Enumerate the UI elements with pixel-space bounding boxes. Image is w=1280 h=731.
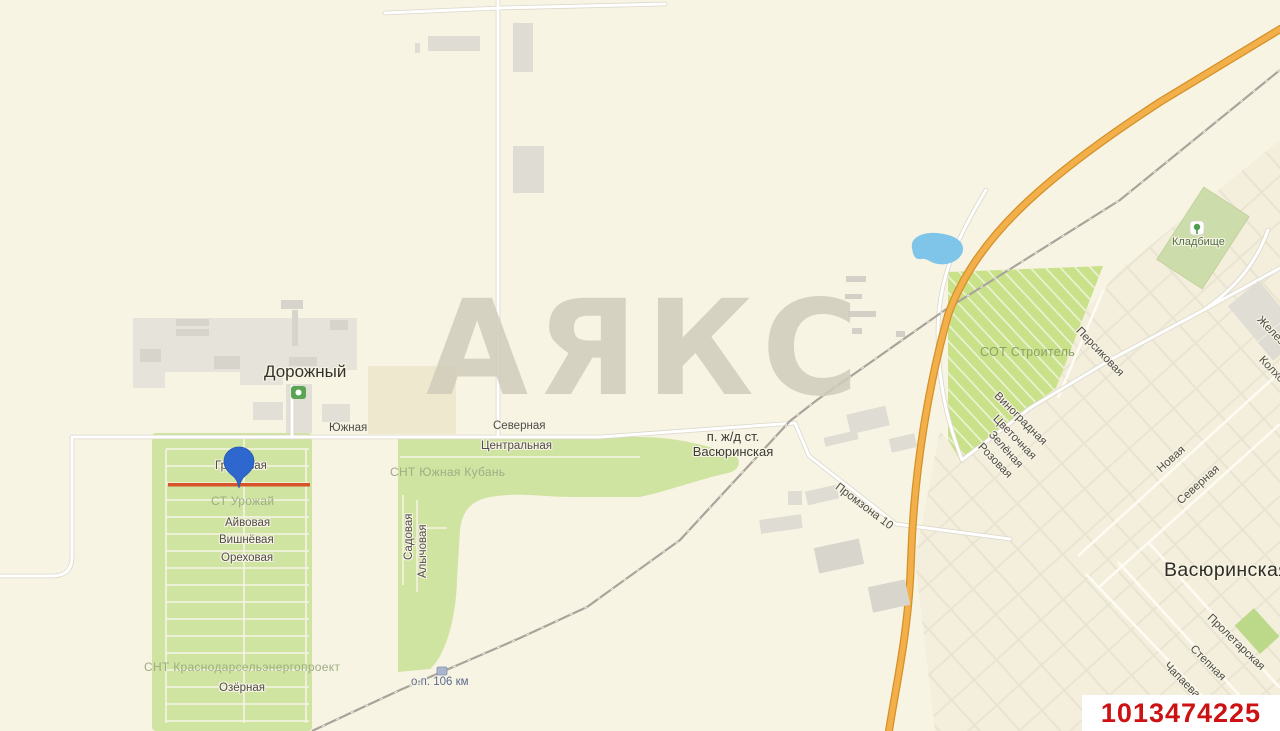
listing-id-value: 1013474225: [1101, 698, 1261, 729]
label-street-ayvovaya: Айвовая: [225, 517, 270, 529]
listing-id-badge: 1013474225: [1082, 695, 1280, 731]
label-rail-stop: о.п. 106 км: [411, 676, 469, 688]
label-station-line2: Васюринская: [683, 445, 783, 460]
label-sot-stroitel: СОТ Строитель: [980, 345, 1075, 359]
label-snt-kse: СНТ Краснодарсельэнергопроект: [144, 660, 340, 674]
label-st-urozhay: СТ Урожай: [211, 494, 274, 508]
label-street-severnaya: Северная: [493, 420, 545, 432]
watermark: АЯКС: [426, 283, 867, 415]
label-cemetery: Кладбище: [1172, 236, 1225, 248]
cemetery-icon: [1190, 221, 1204, 235]
label-street-yuzhnaya: Южная: [329, 422, 367, 434]
poi-icon: [291, 386, 306, 399]
label-street-orekhovaya: Ореховая: [221, 552, 273, 564]
label-street-alychovaya: Алычовая: [417, 524, 429, 578]
label-station-line1: п. ж/д ст.: [683, 430, 783, 445]
map-canvas[interactable]: АЯКС Дорожный п. ж/д ст. Васюринская Вас…: [0, 0, 1280, 731]
label-snt-yuzhnaya-kuban: СНТ Южная Кубань: [390, 465, 505, 479]
label-vasyurinskaya: Васюринская: [1164, 559, 1280, 582]
label-street-sadovaya: Садовая: [403, 513, 415, 560]
label-dorozhny: Дорожный: [264, 362, 346, 382]
label-street-vishnyovaya: Вишнёвая: [219, 534, 274, 546]
label-station: п. ж/д ст. Васюринская: [683, 430, 783, 460]
label-street-ozyornaya: Озёрная: [219, 682, 265, 694]
rail-stop-icon: [437, 667, 447, 675]
location-pin[interactable]: [221, 444, 257, 492]
label-street-tsentralnaya: Центральная: [481, 440, 552, 452]
